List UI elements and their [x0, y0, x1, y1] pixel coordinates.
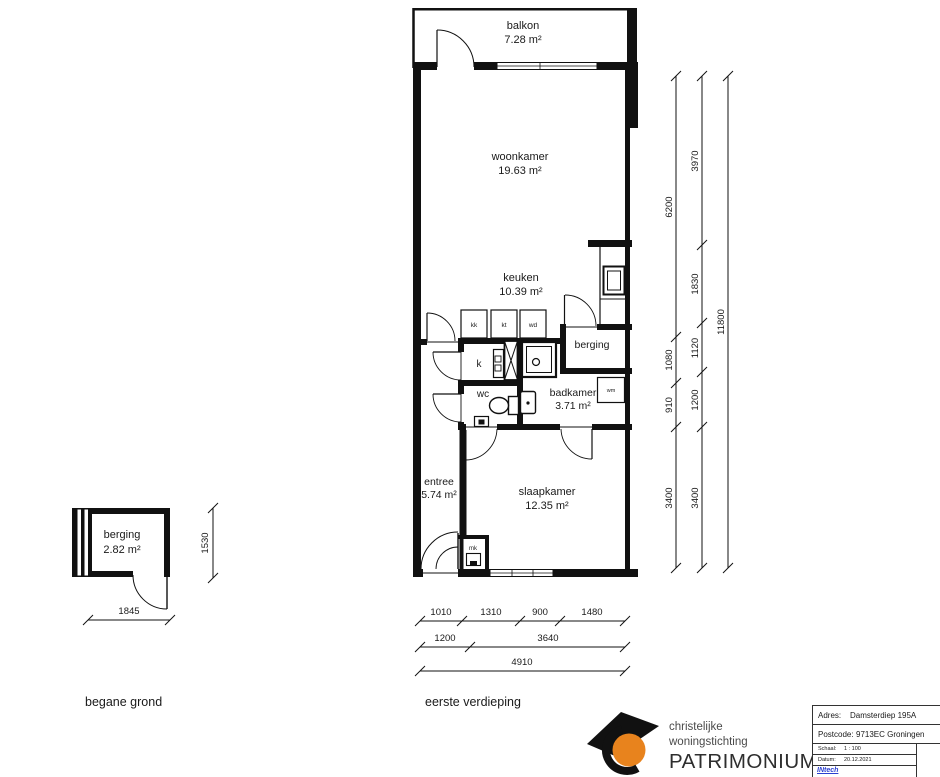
patrimonium-logo-icon	[583, 708, 665, 777]
shower	[522, 342, 556, 377]
datum-label: Datum:	[818, 757, 844, 763]
slaapkamer-area: 12.35 m²	[525, 500, 569, 512]
k-label: k	[477, 359, 483, 370]
wc-floor-drain	[475, 417, 489, 427]
kitchen-counter	[600, 247, 625, 324]
title-block: Adres: Damsterdiep 195A Postcode: 9713EC…	[812, 705, 940, 777]
dim-label: 1530	[200, 532, 211, 553]
keuken-area: 10.39 m²	[499, 286, 543, 298]
org-line1: christelijke	[669, 720, 817, 735]
dim-label: 6200	[664, 196, 675, 217]
front-door	[421, 532, 458, 573]
title-row-schaal: Schaal: 1 : 100	[813, 744, 916, 755]
entree-area: 5.74 m²	[421, 489, 457, 501]
title-row-postcode: Postcode: 9713EC Groningen	[813, 725, 940, 744]
mk-label: mk	[469, 546, 478, 552]
schaal-label: Schaal:	[818, 746, 844, 752]
wd-label: wd	[528, 322, 538, 329]
dim-label: 3970	[690, 150, 701, 171]
dim-label: 3400	[690, 487, 701, 508]
dim-label: 1200	[690, 389, 701, 410]
dim-label: 900	[532, 607, 548, 618]
floorplan-page: balkon 7.28 m²	[0, 0, 940, 777]
datum-value: 20.12.2021	[844, 757, 872, 763]
window-bottom	[490, 570, 553, 577]
kk-label: kk	[471, 322, 478, 329]
kt-label: kt	[501, 322, 506, 329]
dim-label: 3640	[537, 633, 558, 644]
bathroom-sink	[521, 392, 536, 414]
adres-value: Damsterdiep 195A	[850, 711, 916, 720]
dim-label: 1080	[664, 349, 675, 370]
slaapkamer-label: slaapkamer	[519, 486, 576, 498]
boiler	[494, 350, 504, 378]
dim-label: 1120	[690, 338, 701, 358]
dim-label: 1310	[480, 607, 501, 618]
dim-label: 910	[664, 397, 675, 413]
org-line2: woningstichting	[669, 735, 817, 750]
org-name: PATRIMONIUM	[669, 750, 817, 774]
ground-floor-caption: begane grond	[85, 695, 162, 709]
mk-closet-box	[467, 554, 481, 566]
postcode-value: 9713EC Groningen	[856, 730, 925, 739]
title-row-datum: Datum: 20.12.2021	[813, 755, 916, 766]
dim-label: 1480	[581, 607, 602, 618]
dim-label: 1845	[118, 606, 139, 617]
title-lower-section: Schaal: 1 : 100 Datum: 20.12.2021 INtech…	[813, 744, 940, 777]
organisation-block: christelijke woningstichting PATRIMONIUM	[583, 708, 817, 777]
schaal-value: 1 : 100	[844, 746, 861, 752]
dim-label: 1010	[430, 607, 451, 618]
berging-main-label: berging	[574, 339, 609, 351]
shed-berging-area: 2.82 m²	[103, 544, 141, 556]
dim-label: 11800	[716, 309, 727, 335]
keuken-label: keuken	[503, 272, 538, 284]
shaft	[505, 341, 518, 380]
title-empty-cell	[917, 744, 940, 777]
balkon-label: balkon	[507, 20, 539, 32]
postcode-label: Postcode:	[818, 730, 856, 739]
drafter-logo: INtech	[813, 766, 916, 776]
title-row-adres: Adres: Damsterdiep 195A	[813, 706, 940, 725]
toilet	[490, 397, 519, 415]
adres-label: Adres:	[818, 711, 850, 720]
badkamer-label: badkamer	[550, 387, 597, 399]
ground-floor-shed: berging 2.82 m² 1845 1530	[72, 503, 218, 625]
shed-berging-label: berging	[104, 529, 141, 541]
dim-label: 3400	[664, 487, 675, 508]
balkon-area: 7.28 m²	[504, 34, 542, 46]
dim-label: 1200	[434, 633, 455, 644]
wc-label: wc	[476, 389, 489, 400]
first-floor-caption: eerste verdieping	[425, 695, 521, 709]
woonkamer-area: 19.63 m²	[498, 165, 542, 177]
dim-label: 4910	[511, 657, 532, 668]
window-top	[497, 63, 597, 71]
entree-label: entree	[424, 476, 454, 488]
wm-label: wm	[606, 388, 616, 394]
floorplan-drawing: balkon 7.28 m²	[0, 0, 940, 695]
woonkamer-label: woonkamer	[491, 151, 549, 163]
dim-label: 1830	[690, 273, 701, 294]
badkamer-area: 3.71 m²	[555, 400, 591, 412]
